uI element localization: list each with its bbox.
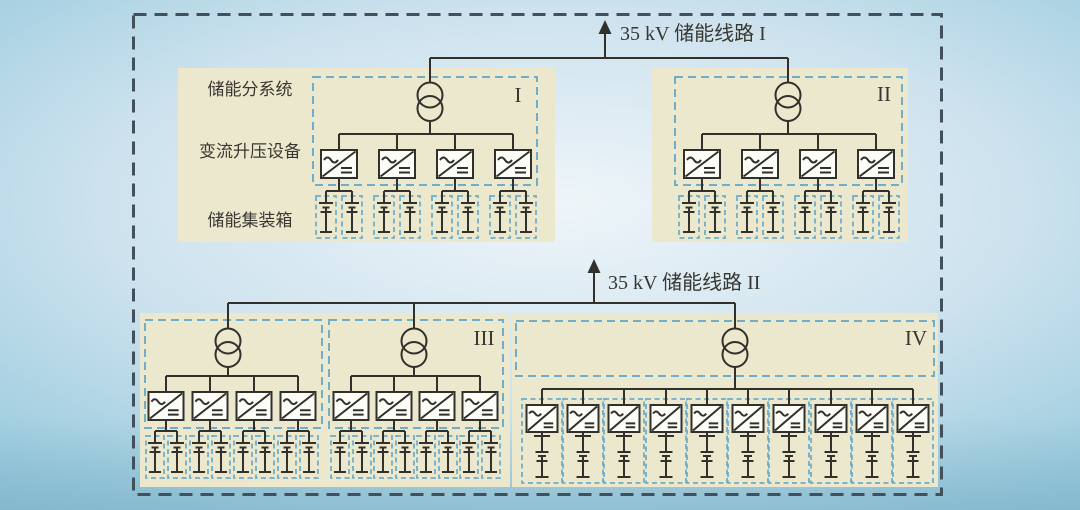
pcs-converter-icon	[857, 405, 888, 432]
pcs-converter-icon	[692, 405, 723, 432]
row-label-storage-container: 储能集装箱	[208, 211, 293, 230]
pcs-converter-icon	[420, 392, 455, 420]
feeder-2-label: 35 kV 储能线路 II	[608, 271, 760, 294]
pcs-converter-icon	[774, 405, 805, 432]
pcs-converter-icon	[898, 405, 929, 432]
pcs-converter-icon	[193, 392, 228, 420]
pcs-converter-icon	[742, 150, 778, 178]
pcs-converter-icon	[684, 150, 720, 178]
pcs-converter-icon	[651, 405, 682, 432]
subsystem-IV-numeral: IV	[905, 326, 927, 350]
pcs-converter-icon	[527, 405, 558, 432]
diagram-canvas: 35 kV 储能线路 I 35 kV 储能线路 II 储能分系统 变流升压设备 …	[0, 0, 1080, 510]
arrow-up-icon	[599, 20, 612, 34]
subsystem-III-numeral: III	[474, 326, 495, 350]
pcs-converter-icon	[321, 150, 357, 178]
pcs-converter-icon	[568, 405, 599, 432]
pcs-converter-icon	[495, 150, 531, 178]
pcs-converter-icon	[733, 405, 764, 432]
pcs-converter-icon	[281, 392, 316, 420]
arrow-up-icon	[588, 259, 601, 273]
subsystem-II-numeral: II	[877, 82, 891, 106]
pcs-converter-icon	[437, 150, 473, 178]
row-label-converter-stepup-equipment: 变流升压设备	[199, 142, 301, 161]
pcs-converter-icon	[463, 392, 498, 420]
pcs-converter-icon	[334, 392, 369, 420]
storage-station-one-line-diagram: 35 kV 储能线路 I 35 kV 储能线路 II 储能分系统 变流升压设备 …	[0, 0, 1080, 510]
pcs-converter-icon	[816, 405, 847, 432]
pcs-converter-icon	[858, 150, 894, 178]
pcs-converter-icon	[237, 392, 272, 420]
feeder-1-label: 35 kV 储能线路 I	[620, 22, 766, 45]
subsystem-I-numeral: I	[515, 83, 522, 107]
pcs-converter-icon	[609, 405, 640, 432]
pcs-converter-icon	[379, 150, 415, 178]
pcs-converter-icon	[377, 392, 412, 420]
pcs-converter-icon	[800, 150, 836, 178]
pcs-converter-icon	[149, 392, 184, 420]
row-label-storage-subsystem: 储能分系统	[208, 80, 293, 99]
